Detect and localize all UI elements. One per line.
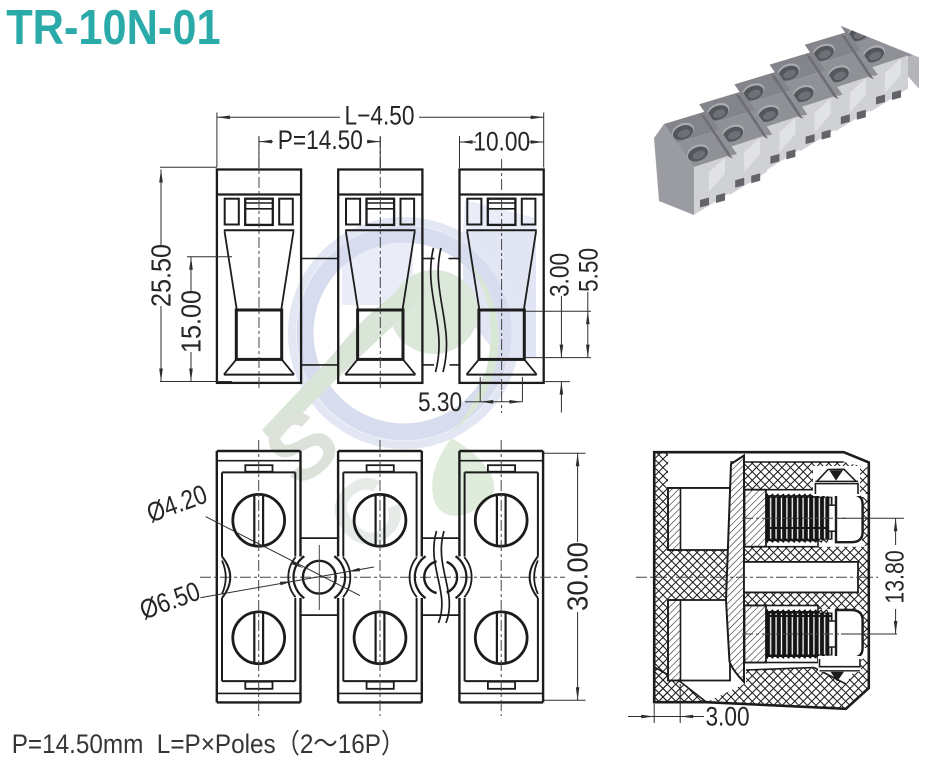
svg-text:10.00: 10.00	[473, 127, 530, 157]
svg-text:5.30: 5.30	[418, 387, 462, 417]
svg-text:P=14.50mm L=P×Poles（2～16P）: P=14.50mm L=P×Poles（2～16P）	[12, 730, 406, 759]
svg-text:TR-10N-01: TR-10N-01	[6, 0, 220, 55]
svg-text:P=14.50: P=14.50	[278, 125, 363, 155]
svg-text:30.00: 30.00	[561, 542, 594, 611]
svg-text:15.00: 15.00	[175, 290, 207, 353]
svg-text:5.50: 5.50	[573, 248, 603, 292]
svg-text:25.50: 25.50	[145, 244, 177, 307]
svg-text:3.00: 3.00	[545, 253, 575, 297]
svg-text:3.00: 3.00	[705, 702, 749, 732]
svg-text:13.80: 13.80	[881, 550, 911, 603]
